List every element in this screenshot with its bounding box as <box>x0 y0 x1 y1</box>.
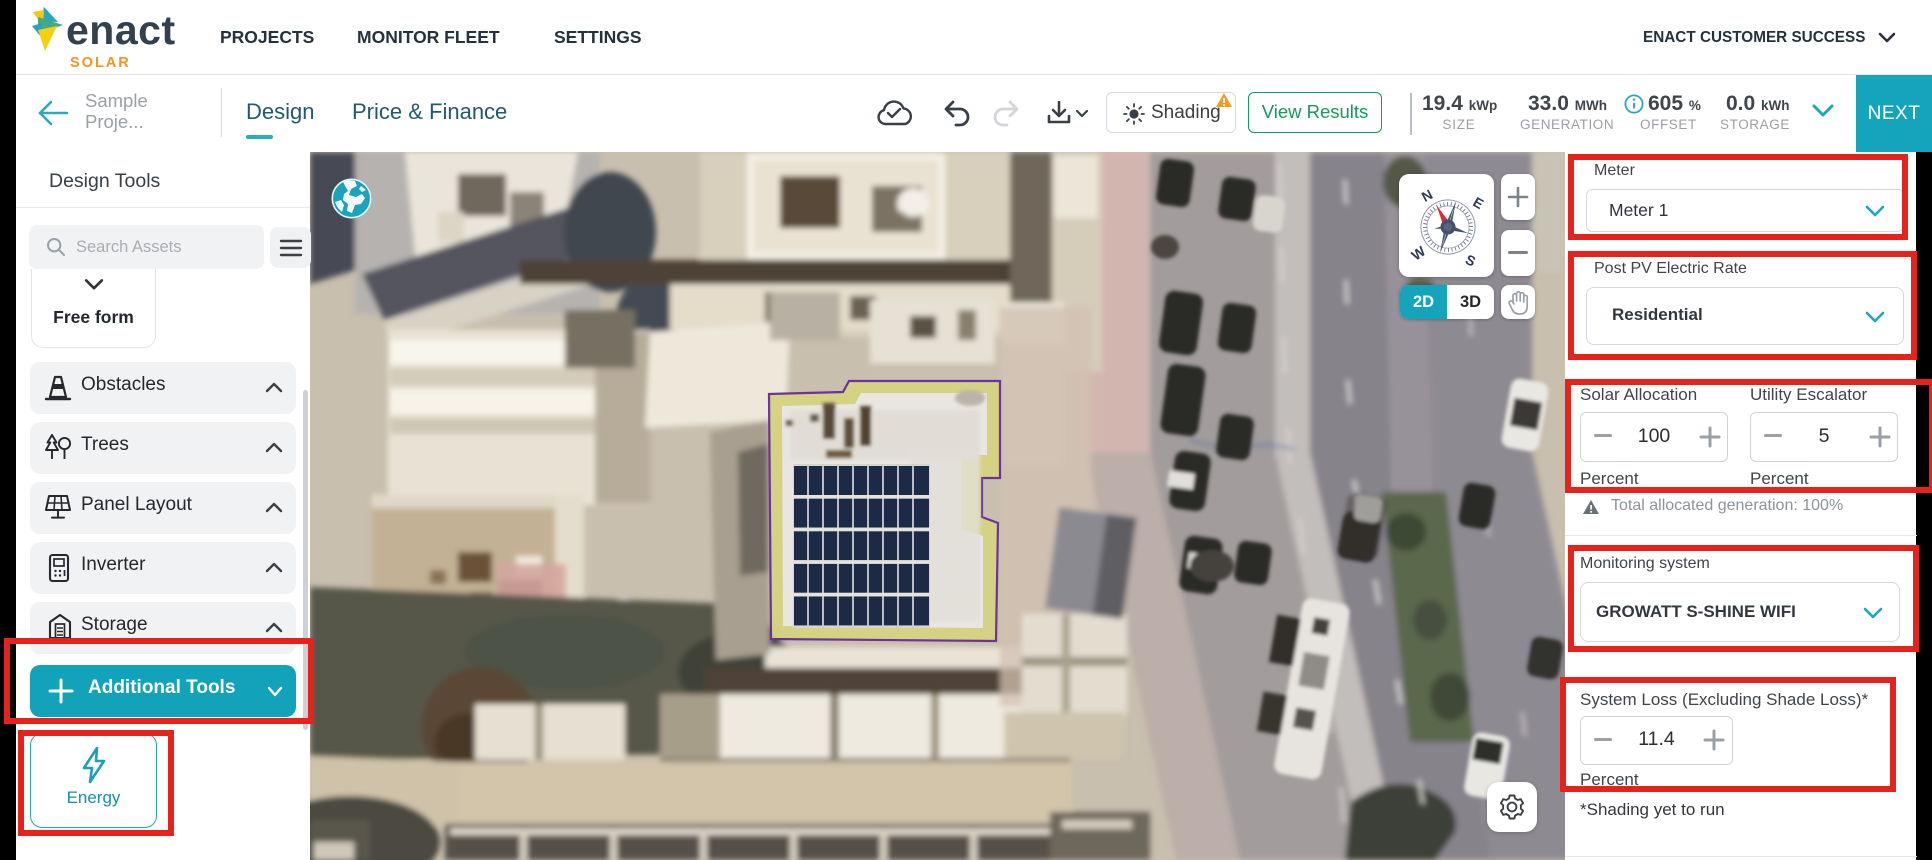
svg-text:N: N <box>1419 186 1435 205</box>
svg-text:S: S <box>1463 251 1478 269</box>
svg-text:E: E <box>1470 194 1486 213</box>
svg-text:W: W <box>1408 242 1429 263</box>
